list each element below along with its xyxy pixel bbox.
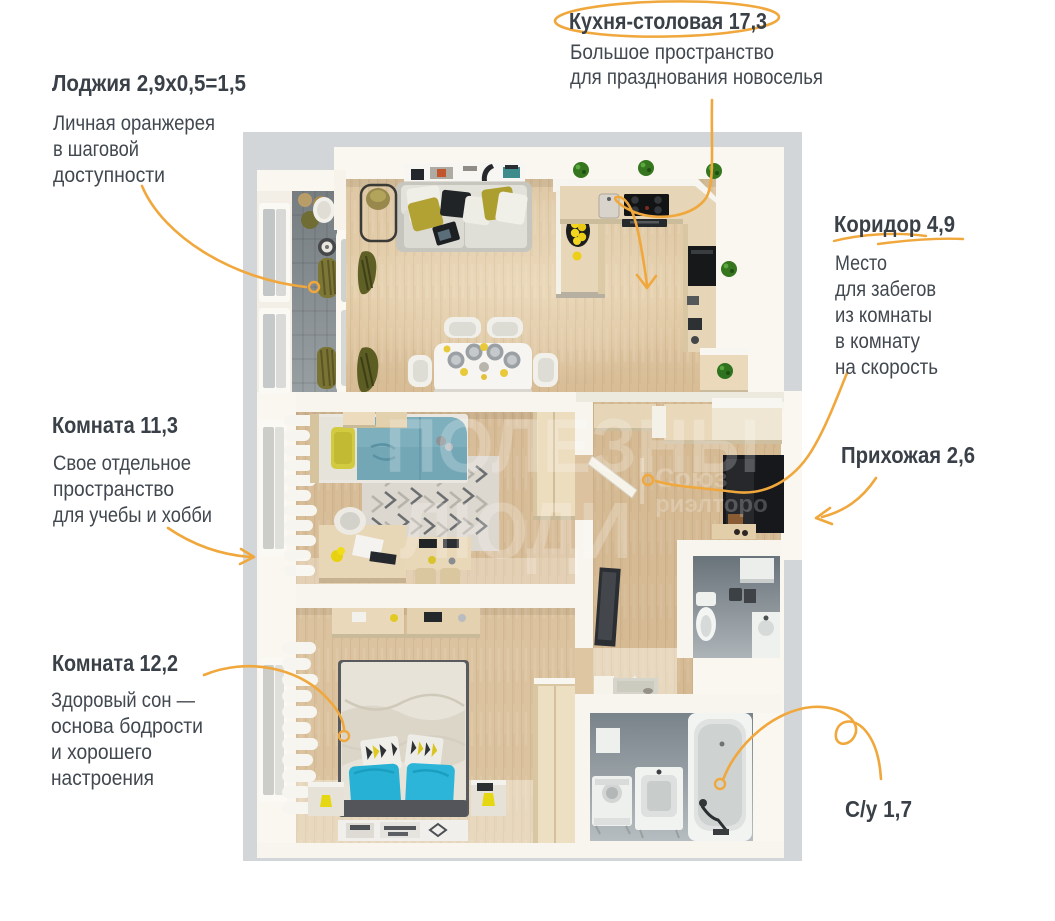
svg-text:основа бодрости: основа бодрости <box>51 715 203 738</box>
svg-text:для празднования новоселья: для празднования новоселья <box>570 66 823 89</box>
svg-text:Личная оранжерея: Личная оранжерея <box>53 112 215 135</box>
svg-text:Большое пространство: Большое пространство <box>570 41 774 64</box>
svg-text:из комнаты: из комнаты <box>835 304 932 327</box>
svg-text:Место: Место <box>835 252 887 275</box>
svg-text:Здоровый сон —: Здоровый сон — <box>51 689 195 712</box>
svg-text:Свое отдельное: Свое отдельное <box>53 452 191 475</box>
svg-text:настроения: настроения <box>51 767 154 790</box>
svg-text:и хорошего: и хорошего <box>51 741 152 764</box>
svg-text:в комнату: в комнату <box>835 330 920 353</box>
svg-text:ЛЮДИ: ЛЮДИ <box>400 486 632 575</box>
svg-text:Союз: Союз <box>655 463 727 493</box>
svg-text:на скорость: на скорость <box>835 356 938 379</box>
svg-text:риэлторо: риэлторо <box>655 491 768 518</box>
svg-text:Кухня-столовая 17,3: Кухня-столовая 17,3 <box>569 8 767 34</box>
svg-text:С/у 1,7: С/у 1,7 <box>845 796 912 822</box>
svg-text:Лоджия 2,9х0,5=1,5: Лоджия 2,9х0,5=1,5 <box>52 70 246 96</box>
svg-text:Комната 12,2: Комната 12,2 <box>52 650 178 676</box>
svg-text:для забегов: для забегов <box>835 278 936 301</box>
svg-text:пространство: пространство <box>53 478 174 501</box>
svg-text:в шаговой: в шаговой <box>53 138 139 161</box>
svg-text:Комната 11,3: Комната 11,3 <box>52 412 178 438</box>
svg-text:Коридор 4,9: Коридор 4,9 <box>834 211 955 237</box>
svg-text:Прихожая 2,6: Прихожая 2,6 <box>841 442 975 468</box>
svg-text:доступности: доступности <box>53 164 165 187</box>
svg-text:для учебы и хобби: для учебы и хобби <box>53 504 212 527</box>
